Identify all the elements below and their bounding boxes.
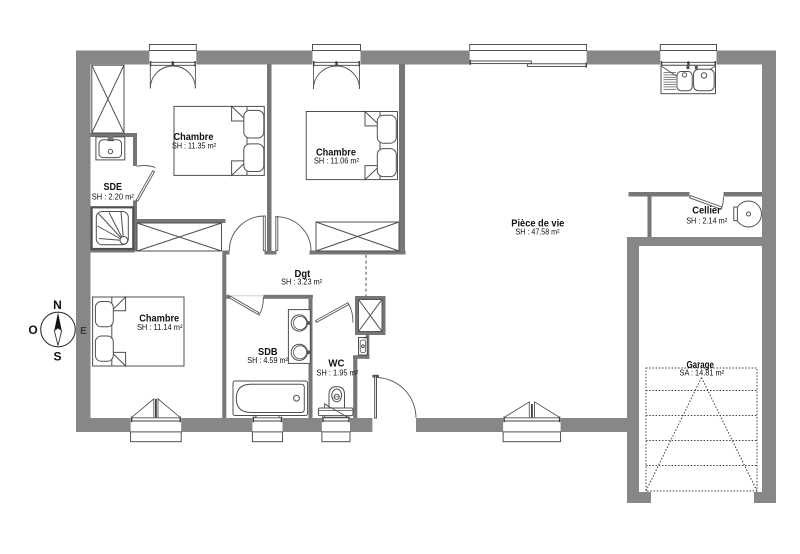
svg-text:SH : 11.06 m²: SH : 11.06 m²	[314, 157, 359, 166]
svg-text:SH : 11.35 m²: SH : 11.35 m²	[172, 142, 216, 151]
svg-text:SH : 47.58 m²: SH : 47.58 m²	[516, 227, 560, 236]
svg-text:E: E	[80, 326, 87, 337]
svg-text:SH : 4.59 m²: SH : 4.59 m²	[247, 356, 288, 365]
svg-text:SA : 14.81 m²: SA : 14.81 m²	[680, 369, 725, 378]
svg-text:N: N	[53, 298, 62, 312]
svg-text:S: S	[53, 350, 61, 364]
svg-text:Cellier: Cellier	[692, 205, 721, 216]
svg-text:SH : 2.20 m²: SH : 2.20 m²	[92, 192, 134, 201]
svg-text:O: O	[28, 323, 37, 337]
svg-text:SH : 11.14 m²: SH : 11.14 m²	[137, 323, 183, 332]
svg-text:SH : 3.23 m²: SH : 3.23 m²	[281, 277, 322, 286]
svg-text:SH : 1.95 m²: SH : 1.95 m²	[316, 369, 358, 378]
svg-text:SH : 2.14 m²: SH : 2.14 m²	[686, 216, 727, 225]
